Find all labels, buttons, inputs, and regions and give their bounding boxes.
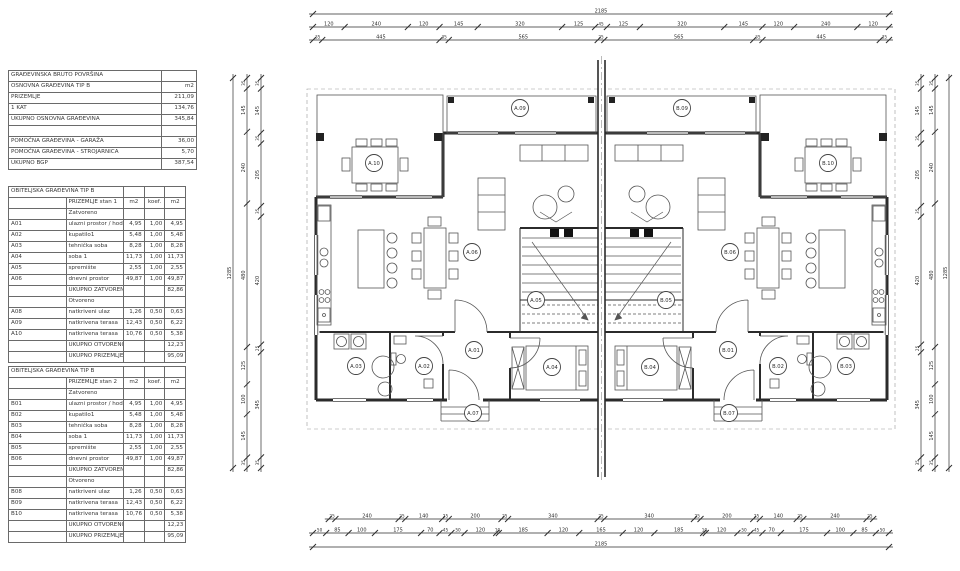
room-label-text: A.03 xyxy=(350,364,362,370)
fireplace xyxy=(550,229,559,237)
room-label-text: A.01 xyxy=(468,348,480,354)
column-post xyxy=(448,97,454,103)
room-label: A.03 xyxy=(348,358,365,375)
dimension-text: 1285 xyxy=(227,267,233,280)
dimension-text: 45 xyxy=(443,527,449,532)
dimension-text: 45 xyxy=(598,21,604,26)
dimension-text: 25 xyxy=(598,34,604,39)
dimension-text: 35 xyxy=(255,460,260,466)
terrace-a10 xyxy=(316,95,443,197)
dimension-text: 35 xyxy=(915,208,920,214)
dimension-text: 25 xyxy=(797,513,803,518)
dimension-text: 200 xyxy=(722,513,732,519)
dimension-text: 340 xyxy=(548,513,558,519)
dimension-text: 420 xyxy=(915,276,921,286)
dimension-text: 125 xyxy=(574,21,584,27)
sink xyxy=(320,248,328,256)
dimension-text: 565 xyxy=(674,34,684,40)
room-label: B.04 xyxy=(642,359,659,376)
room-label: B.03 xyxy=(838,358,855,375)
dimension-text: 35 xyxy=(929,80,934,86)
dimension-text: 35 xyxy=(915,80,920,86)
dimension-text: 100 xyxy=(929,394,935,404)
dimension-text: 35 xyxy=(255,208,260,214)
room-label-text: B.07 xyxy=(723,411,735,417)
dimension-text: 345 xyxy=(915,400,921,410)
dimension-text: 175 xyxy=(393,527,403,533)
dimension-text: 25 xyxy=(329,513,335,518)
stool xyxy=(387,233,397,243)
room-label-text: B.06 xyxy=(724,250,736,256)
entry-door xyxy=(449,370,479,400)
dimension-text: 35 xyxy=(241,460,246,466)
room-label: A.05 xyxy=(528,292,545,309)
room-label: B.09 xyxy=(674,100,691,117)
dimension-text: 120 xyxy=(634,527,644,533)
room-label-text: A.10 xyxy=(368,161,380,167)
dimension-text: 420 xyxy=(255,276,261,286)
dimension-text: 1285 xyxy=(943,267,949,280)
floor-plan-drawing: 2185120240120145320125451253201451202401… xyxy=(0,0,960,571)
dimension-text: 145 xyxy=(929,105,935,115)
dimension-text: 25 xyxy=(255,345,260,351)
dimension-text: 25 xyxy=(399,513,405,518)
dimension-text: 445 xyxy=(816,34,826,40)
dimension-text: 240 xyxy=(830,513,840,519)
dimension-text: 205 xyxy=(915,170,921,180)
dimension-text: 145 xyxy=(454,21,464,27)
room-label: B.05 xyxy=(658,292,675,309)
dimension-text: 125 xyxy=(619,21,629,27)
dimension-text: 45 xyxy=(754,527,760,532)
dimension-text: 2185 xyxy=(595,8,608,14)
dimension-text: 25 xyxy=(502,513,508,518)
dimension-text: 480 xyxy=(929,270,935,280)
dimension-text: 25 xyxy=(443,513,449,518)
cooktop xyxy=(319,290,324,295)
dimension-text: 85 xyxy=(861,527,867,533)
dimension-text: 445 xyxy=(376,34,386,40)
landing-arrow xyxy=(540,212,572,222)
sofa xyxy=(478,178,505,230)
room-label-text: A.06 xyxy=(466,250,478,256)
dimension-text: 240 xyxy=(241,163,247,173)
room-label-text: B.02 xyxy=(772,364,784,370)
room-label-text: B.05 xyxy=(660,298,672,304)
column-post xyxy=(434,133,442,141)
living-furniture xyxy=(478,145,588,237)
dimension-text: 240 xyxy=(929,163,935,173)
column-post xyxy=(588,97,594,103)
tv-cabinet xyxy=(520,145,588,161)
dimension-text: 100 xyxy=(357,527,367,533)
dimension-text: 50 xyxy=(880,527,886,532)
dimension-text: 240 xyxy=(371,21,381,27)
dimension-text: 70 xyxy=(427,527,433,533)
dimension-text: 50 xyxy=(741,527,747,532)
floor-plan-sheet: GRAĐEVINSKA BRUTO POVRŠINAOSNOVNA GRAĐEV… xyxy=(0,0,960,571)
dimension-text: 320 xyxy=(677,21,687,27)
room-label-text: B.04 xyxy=(644,365,657,371)
dimension-text: 165 xyxy=(596,527,606,533)
dimension-text: 35 xyxy=(929,460,934,466)
room-label: A.09 xyxy=(512,100,529,117)
room-label: B.02 xyxy=(770,358,787,375)
room-label: A.04 xyxy=(544,359,561,376)
side-table xyxy=(558,186,574,202)
dimension-text: 125 xyxy=(929,361,935,371)
kitchen xyxy=(317,205,397,325)
pillow xyxy=(579,350,586,365)
dimension-text: 145 xyxy=(241,105,247,115)
dimension-text: 185 xyxy=(518,527,528,533)
dimension-text: 320 xyxy=(515,21,525,27)
dimension-text: 25 xyxy=(695,513,701,518)
dimension-text: 25 xyxy=(867,513,873,518)
dimension-text: 100 xyxy=(835,527,845,533)
room-label: A.06 xyxy=(464,244,481,261)
dimension-text: 25 xyxy=(754,513,760,518)
toilet xyxy=(397,355,406,364)
dimension-text: 2185 xyxy=(595,541,608,547)
dimension-text: 120 xyxy=(774,21,784,27)
room-label: B.01 xyxy=(720,342,737,359)
dimension-text: 35 xyxy=(241,80,246,86)
dimension-text: 200 xyxy=(470,513,480,519)
room-label-text: A.07 xyxy=(467,411,479,417)
dimension-text: 125 xyxy=(241,361,247,371)
dimension-text: 120 xyxy=(476,527,486,533)
room-label: A.02 xyxy=(416,358,433,375)
dimension-text: 35 xyxy=(882,34,888,39)
dimension-text: 185 xyxy=(674,527,684,533)
dimension-text: 205 xyxy=(255,170,261,180)
dimension-text: 120 xyxy=(717,527,727,533)
dimension-text: 35 xyxy=(915,135,920,141)
dimension-text: 120 xyxy=(868,21,878,27)
stair-direction-line xyxy=(532,242,588,320)
dimension-text: 120 xyxy=(419,21,429,27)
room-label: A.01 xyxy=(466,342,483,359)
room-label: A.07 xyxy=(465,405,482,422)
room-label-text: B.09 xyxy=(676,106,688,112)
room-label: B.06 xyxy=(722,244,739,261)
dimension-text: 345 xyxy=(255,400,261,410)
dimension-text: 175 xyxy=(799,527,809,533)
dimension-text: 35 xyxy=(255,135,260,141)
dimension-text: 140 xyxy=(419,513,429,519)
dimension-text: 70 xyxy=(769,527,775,533)
room-label-text: B.01 xyxy=(722,348,734,354)
dimension-text: 35 xyxy=(915,460,920,466)
dimension-text: 120 xyxy=(324,21,334,27)
dimension-text: 85 xyxy=(334,527,340,533)
dimension-text: 35 xyxy=(441,34,447,39)
room-label: A.10 xyxy=(366,155,383,172)
room-label-text: B.10 xyxy=(822,161,834,167)
room-label-text: A.02 xyxy=(418,364,430,370)
dimension-text: 120 xyxy=(559,527,569,533)
dimension-text: 35 xyxy=(255,80,260,86)
room-label-text: A.04 xyxy=(546,365,558,371)
room-label-text: A.05 xyxy=(530,298,542,304)
dimension-text: 240 xyxy=(821,21,831,27)
dimension-text: 50 xyxy=(317,527,323,532)
room-label-text: B.03 xyxy=(840,364,852,370)
kitchen-island xyxy=(358,230,384,288)
dining-set xyxy=(412,217,458,299)
column-post xyxy=(316,133,324,141)
dimension-text: 35 xyxy=(755,34,761,39)
dimension-text: 100 xyxy=(241,394,247,404)
oven xyxy=(318,308,330,322)
dimension-lines: 2185120240120145320125451253201451202401… xyxy=(227,8,952,550)
dimension-text: 145 xyxy=(255,106,261,116)
dimension-text: 50 xyxy=(455,527,461,532)
dimension-text: 25 xyxy=(598,513,604,518)
dimension-text: 35 xyxy=(315,34,321,39)
party-wall xyxy=(598,56,605,481)
dimension-text: 145 xyxy=(739,21,749,27)
room-label: B.10 xyxy=(820,155,837,172)
dimension-text: 240 xyxy=(362,513,372,519)
fridge xyxy=(318,206,330,221)
dimension-text: 25 xyxy=(915,345,920,351)
dimension-text: 565 xyxy=(518,34,528,40)
dimension-text: 145 xyxy=(241,431,247,441)
washbasin xyxy=(424,379,433,388)
room-label: B.07 xyxy=(721,405,738,422)
dimension-text: 140 xyxy=(774,513,784,519)
dimension-text: 145 xyxy=(929,431,935,441)
dimension-text: 480 xyxy=(241,270,247,280)
dimension-text: 340 xyxy=(644,513,654,519)
dimension-text: 145 xyxy=(915,106,921,116)
room-label-text: A.09 xyxy=(514,106,526,112)
